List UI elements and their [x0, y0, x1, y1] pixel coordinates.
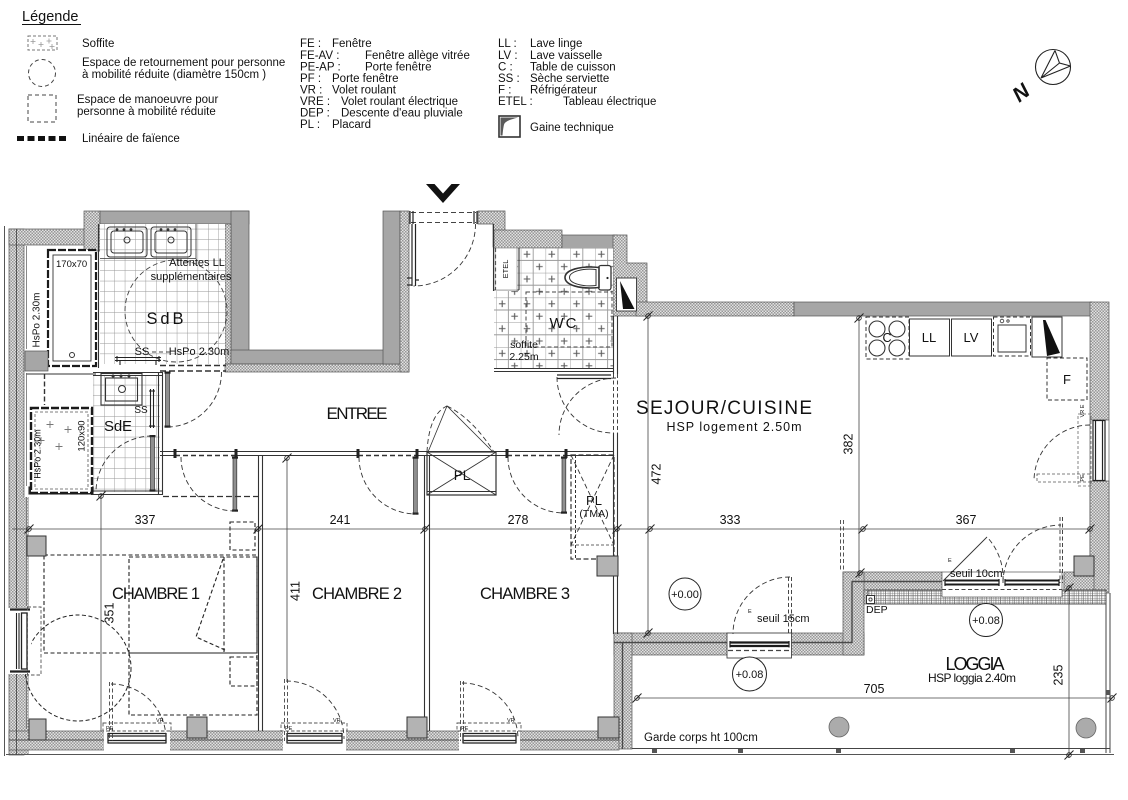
svg-text:Gaine technique: Gaine technique: [530, 122, 614, 134]
svg-text:WC: WC: [550, 315, 577, 332]
svg-text:ETEL: ETEL: [501, 260, 510, 279]
svg-text:PL: PL: [586, 493, 602, 508]
svg-text:Légende: Légende: [22, 9, 78, 25]
svg-text:LL: LL: [922, 330, 936, 345]
svg-text:HsPo 2.30m: HsPo 2.30m: [32, 429, 42, 479]
svg-text:VR: VR: [507, 718, 515, 724]
svg-text:Table de cuisson: Table de cuisson: [530, 62, 616, 74]
svg-text:Lave linge: Lave linge: [530, 38, 582, 50]
svg-text:PE: PE: [106, 726, 114, 732]
svg-text:235: 235: [1051, 665, 1065, 686]
svg-text:PE: PE: [1080, 474, 1086, 482]
svg-text:CHAMBRE 3: CHAMBRE 3: [480, 585, 570, 603]
svg-text:351: 351: [102, 603, 116, 624]
svg-text:Soffite: Soffite: [82, 38, 114, 50]
svg-text:382: 382: [841, 434, 855, 455]
svg-text:LV :: LV :: [498, 50, 518, 62]
svg-text:à mobilité réduite (diamètre 1: à mobilité réduite (diamètre 150cm ): [82, 69, 266, 81]
svg-text:Volet roulant: Volet roulant: [332, 85, 397, 97]
svg-text:DEP :: DEP :: [300, 108, 330, 120]
svg-text:F :: F :: [498, 85, 511, 97]
svg-text:LL :: LL :: [498, 38, 517, 50]
svg-text:HsPo 2.30m: HsPo 2.30m: [32, 292, 43, 347]
svg-text:278: 278: [508, 513, 529, 527]
svg-text:+0.08: +0.08: [736, 669, 764, 681]
svg-text:VR: VR: [333, 718, 341, 724]
svg-text:SdB: SdB: [147, 310, 184, 328]
svg-text:120x90: 120x90: [77, 420, 88, 451]
svg-text:VR E: VR E: [1080, 404, 1086, 417]
svg-text:Fenêtre allège vitrée: Fenêtre allège vitrée: [365, 50, 470, 62]
svg-text:soffite: soffite: [510, 339, 538, 351]
svg-text:FE :: FE :: [300, 38, 321, 50]
svg-text:VRE :: VRE :: [300, 96, 330, 108]
svg-text:ENTREE: ENTREE: [327, 404, 388, 423]
svg-text:411: 411: [288, 581, 302, 601]
svg-text:SS: SS: [135, 346, 150, 358]
svg-text:SS: SS: [134, 405, 148, 416]
svg-text:SS :: SS :: [498, 73, 520, 85]
svg-text:HSP logement 2.50m: HSP logement 2.50m: [667, 420, 802, 434]
svg-text:personne à mobilité réduite: personne à mobilité réduite: [77, 106, 216, 118]
svg-text:170x70: 170x70: [56, 259, 87, 270]
svg-text:Sèche serviette: Sèche serviette: [530, 73, 609, 85]
svg-text:333: 333: [720, 513, 741, 527]
svg-text:DEP: DEP: [866, 604, 888, 616]
svg-text:Linéaire de faïence: Linéaire de faïence: [82, 133, 180, 145]
svg-text:(TMA): (TMA): [579, 508, 608, 520]
svg-text:+0.08: +0.08: [972, 615, 1000, 627]
svg-text:E: E: [748, 609, 752, 615]
svg-text:367: 367: [956, 513, 977, 527]
svg-text:Descente d'eau pluviale: Descente d'eau pluviale: [341, 108, 463, 120]
svg-text:PL: PL: [454, 468, 471, 483]
svg-text:Garde corps ht 100cm: Garde corps ht 100cm: [644, 732, 758, 744]
svg-text:Réfrigérateur: Réfrigérateur: [530, 85, 597, 97]
svg-text:FE-AV :: FE-AV :: [300, 50, 339, 62]
svg-text:Placard: Placard: [332, 119, 371, 131]
svg-text:241: 241: [330, 513, 351, 527]
svg-text:PE: PE: [461, 726, 469, 732]
svg-text:HsPo 2.30m: HsPo 2.30m: [169, 346, 230, 358]
svg-text:supplémentaires: supplémentaires: [151, 271, 232, 283]
svg-text:472: 472: [649, 464, 663, 485]
svg-text:PE: PE: [285, 726, 293, 732]
svg-text:ETEL :: ETEL :: [498, 96, 533, 108]
svg-text:337: 337: [135, 513, 156, 527]
svg-text:seuil 10cm: seuil 10cm: [950, 568, 1003, 580]
svg-text:Espace de manoeuvre pour: Espace de manoeuvre pour: [77, 94, 218, 106]
svg-text:Tableau électrique: Tableau électrique: [563, 96, 656, 108]
svg-text:PE-AP :: PE-AP :: [300, 62, 341, 74]
svg-text:PF :: PF :: [300, 73, 321, 85]
svg-text:C :: C :: [498, 62, 513, 74]
svg-text:+0.00: +0.00: [671, 589, 699, 601]
svg-text:SdE: SdE: [104, 418, 132, 435]
svg-text:705: 705: [864, 682, 885, 696]
svg-text:Porte fenêtre: Porte fenêtre: [332, 73, 398, 85]
svg-text:Volet roulant électrique: Volet roulant électrique: [341, 96, 458, 108]
svg-text:Attentes LL: Attentes LL: [169, 257, 225, 269]
svg-text:Fenêtre: Fenêtre: [332, 38, 372, 50]
svg-text:CHAMBRE 2: CHAMBRE 2: [312, 585, 402, 603]
svg-text:Lave vaisselle: Lave vaisselle: [530, 50, 602, 62]
svg-text:Espace de retournement pour pe: Espace de retournement pour personne: [82, 57, 285, 69]
svg-text:C: C: [882, 331, 891, 345]
svg-text:F: F: [1063, 372, 1071, 387]
svg-text:2.25m: 2.25m: [509, 351, 538, 363]
svg-text:seuil 15cm: seuil 15cm: [757, 613, 810, 625]
svg-text:PL :: PL :: [300, 119, 320, 131]
svg-text:SEJOUR/CUISINE: SEJOUR/CUISINE: [636, 398, 812, 419]
svg-text:HSP loggia 2.40m: HSP loggia 2.40m: [928, 671, 1016, 685]
svg-text:VR: VR: [156, 718, 164, 724]
svg-text:E: E: [948, 558, 952, 564]
svg-text:VR :: VR :: [300, 85, 322, 97]
svg-text:Porte fenêtre: Porte fenêtre: [365, 62, 431, 74]
svg-text:CHAMBRE 1: CHAMBRE 1: [112, 585, 200, 603]
svg-text:LV: LV: [964, 330, 979, 345]
